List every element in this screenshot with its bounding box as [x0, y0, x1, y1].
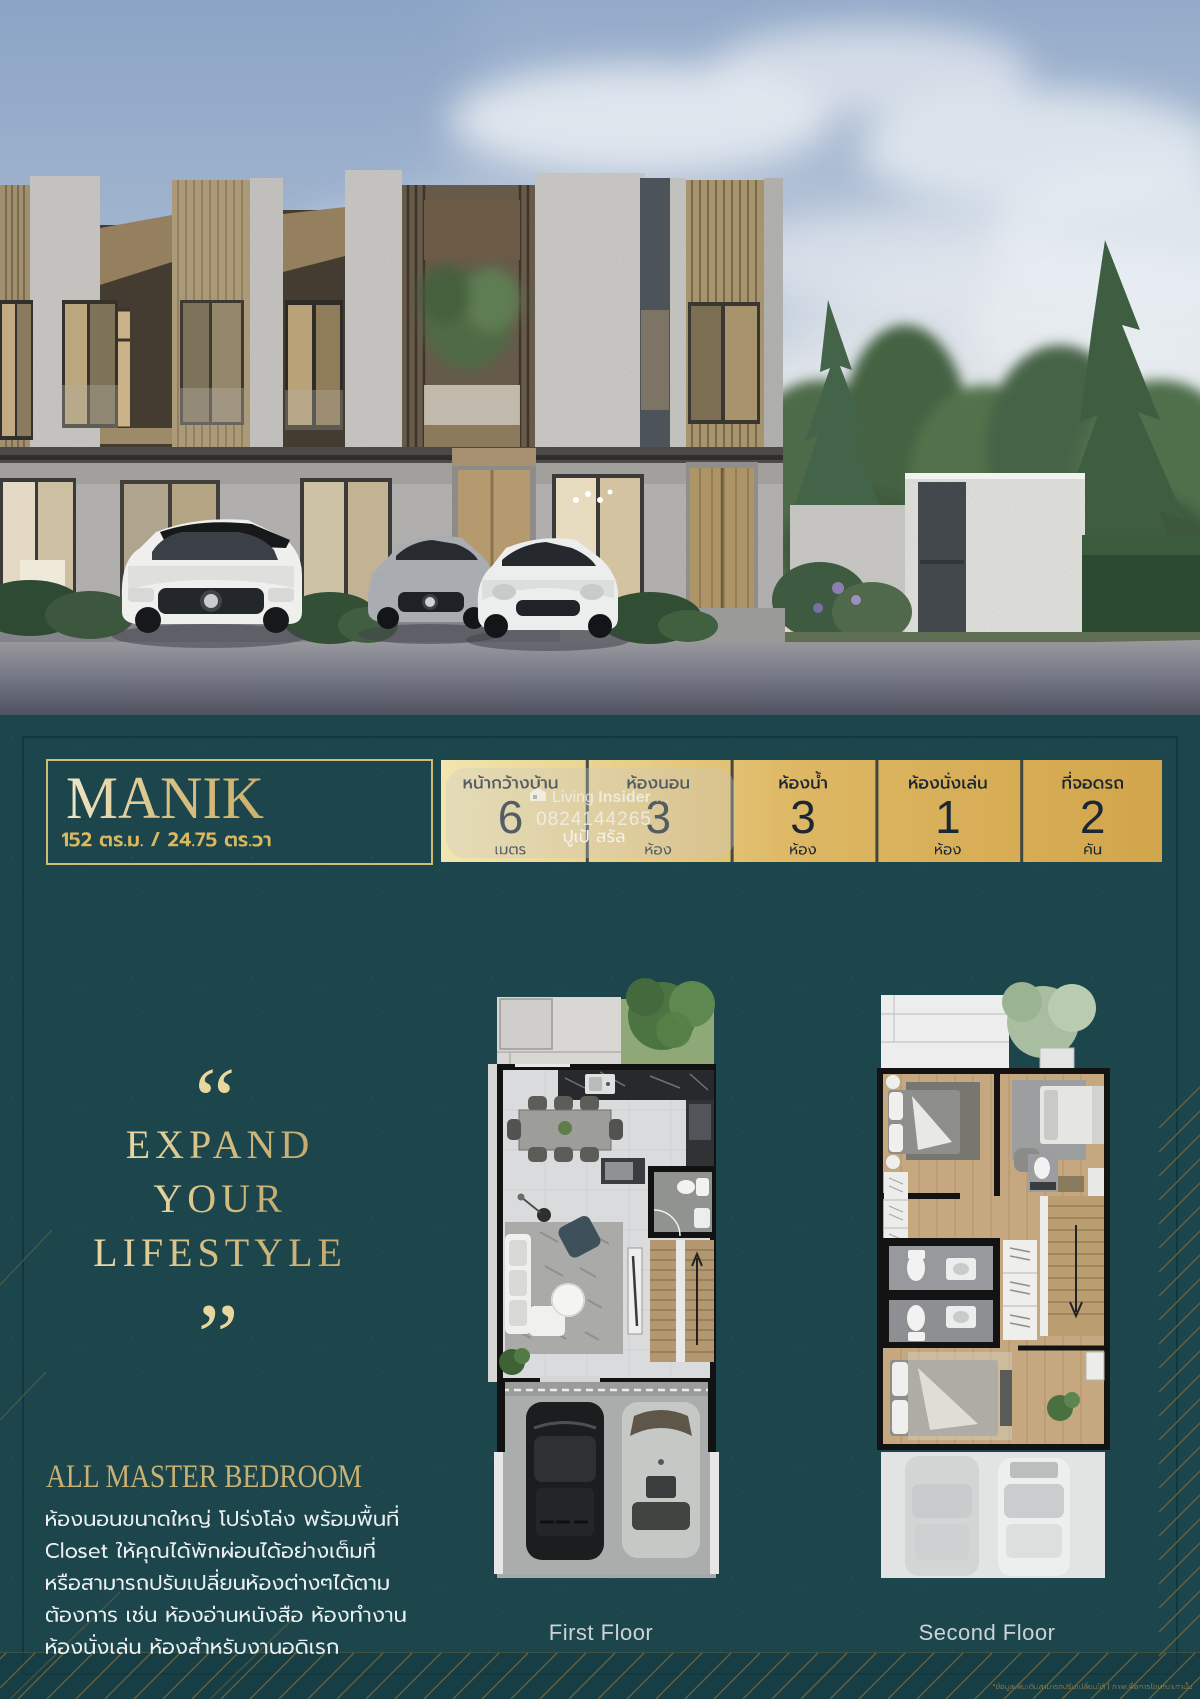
svg-text:First Floor: First Floor: [549, 1620, 654, 1645]
svg-text:LIFESTYLE: LIFESTYLE: [93, 1230, 347, 1275]
svg-text:MANIK: MANIK: [66, 765, 264, 831]
svg-text:”: ”: [198, 1285, 239, 1387]
svg-text:ALL MASTER BEDROOM: ALL MASTER BEDROOM: [46, 1459, 362, 1495]
svg-text:0824144265: 0824144265: [536, 809, 652, 830]
svg-text:1: 1: [935, 791, 961, 843]
svg-text:2: 2: [1080, 791, 1106, 843]
svg-text:Living Insider ...: Living Insider ...: [552, 789, 669, 806]
svg-text:Second Floor: Second Floor: [919, 1620, 1056, 1645]
svg-text:YOUR: YOUR: [153, 1176, 286, 1221]
svg-text:3: 3: [790, 791, 816, 843]
svg-text:EXPAND: EXPAND: [126, 1122, 315, 1167]
